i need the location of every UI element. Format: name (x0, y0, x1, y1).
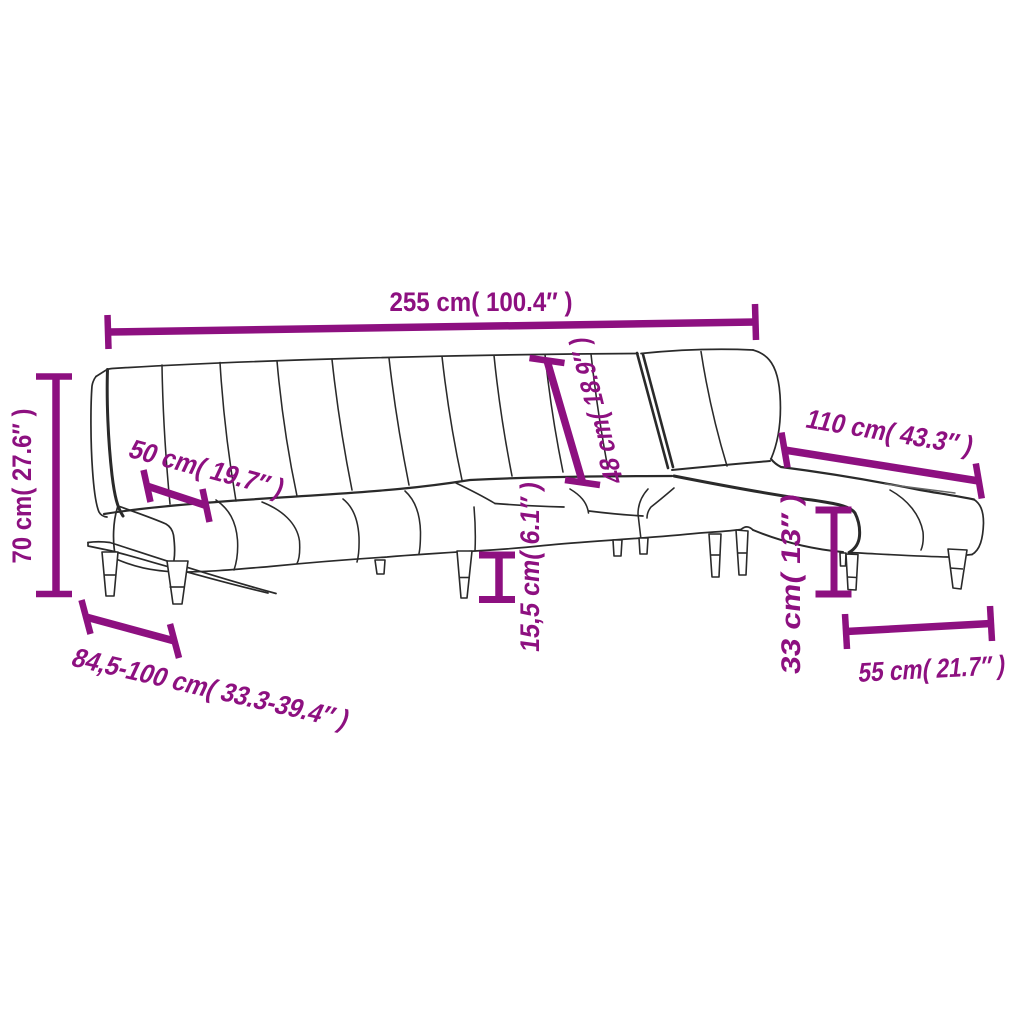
svg-text:70 cm( 27.6″ ): 70 cm( 27.6″ ) (7, 409, 37, 564)
svg-text:48 cm( 18.9″ ): 48 cm( 18.9″ ) (562, 337, 630, 484)
svg-text:33 cm( 13″ ): 33 cm( 13″ ) (775, 492, 806, 676)
svg-text:255 cm( 100.4″ ): 255 cm( 100.4″ ) (390, 287, 573, 317)
svg-text:110 cm( 43.3″ ): 110 cm( 43.3″ ) (802, 403, 978, 460)
svg-text:55 cm( 21.7″ ): 55 cm( 21.7″ ) (857, 649, 1008, 688)
svg-text:15,5 cm( 6.1″ ): 15,5 cm( 6.1″ ) (514, 480, 545, 654)
svg-text:84,5-100 cm( 33.3-39.4″ ): 84,5-100 cm( 33.3-39.4″ ) (67, 642, 355, 734)
